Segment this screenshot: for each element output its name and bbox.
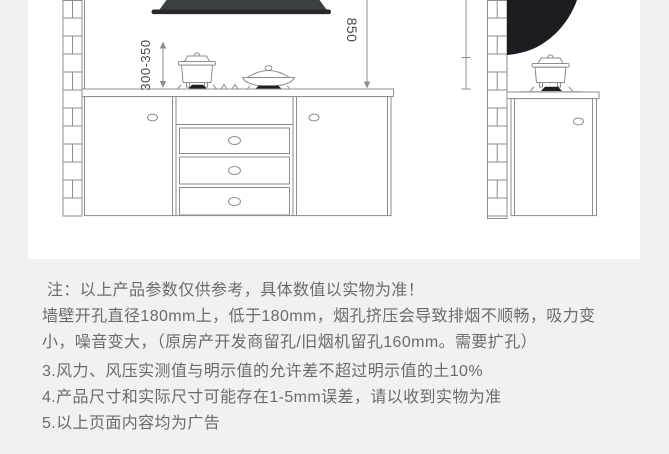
note-line: 注：以上产品参数仅供参考，具体数值以实物为准！ — [42, 278, 667, 304]
brick-wall-icon — [488, 0, 508, 219]
dimension-label-pot-clearance: 300-350 — [139, 37, 153, 93]
countertop-front — [82, 89, 394, 97]
note-line: 5.以上页面内容均为广告 — [42, 411, 667, 437]
wok-icon — [243, 66, 295, 87]
countertop-side — [507, 92, 599, 99]
note-line: 墙壁开孔直径180mm上，低于180mm，烟孔挤压会导致排烟不顺畅，吸力变 — [42, 304, 667, 330]
range-hood-front-icon — [152, 0, 332, 14]
product-note-page: 300-350 850 注：以上产品参数仅供参考，具体数值以实物为准！ 墙壁开孔… — [0, 0, 669, 454]
drawer-handle — [229, 198, 241, 206]
gas-burner-icon — [178, 85, 217, 89]
note-line: 3.风力、风压实测值与明示值的允许差不超过明示值的土10% — [42, 359, 667, 385]
base-cabinet-side — [511, 99, 597, 216]
dimension-line-side — [462, 0, 471, 89]
base-cabinet-front — [85, 97, 392, 216]
dimension-line-850 — [364, 0, 370, 89]
stock-pot-icon — [179, 53, 216, 87]
note-line: 小，噪音变大，（原房产开发商留孔/旧烟机留孔160mm。需要扩孔） — [42, 330, 667, 356]
side-view-drawing — [462, 0, 600, 219]
stock-pot-icon — [532, 55, 569, 87]
dimension-line-300-350 — [160, 42, 166, 89]
flame-marks-icon — [221, 85, 238, 90]
gas-burner-icon — [521, 87, 581, 92]
range-hood-side-icon — [507, 0, 577, 55]
door-handle — [148, 114, 158, 121]
note-line: 4.产品尺寸和实际尺寸可能存在1-5mm误差，请以收到实物为准 — [42, 385, 667, 411]
brick-wall-icon — [63, 0, 82, 216]
drawer-handle — [229, 137, 241, 145]
door-handle — [574, 118, 584, 125]
dimension-label-hood-height: 850 — [345, 12, 359, 48]
notes-section: 注：以上产品参数仅供参考，具体数值以实物为准！ 墙壁开孔直径180mm上，低于1… — [42, 278, 667, 437]
door-handle — [309, 114, 319, 121]
drawer-handle — [229, 167, 241, 175]
installation-diagram — [0, 0, 669, 262]
